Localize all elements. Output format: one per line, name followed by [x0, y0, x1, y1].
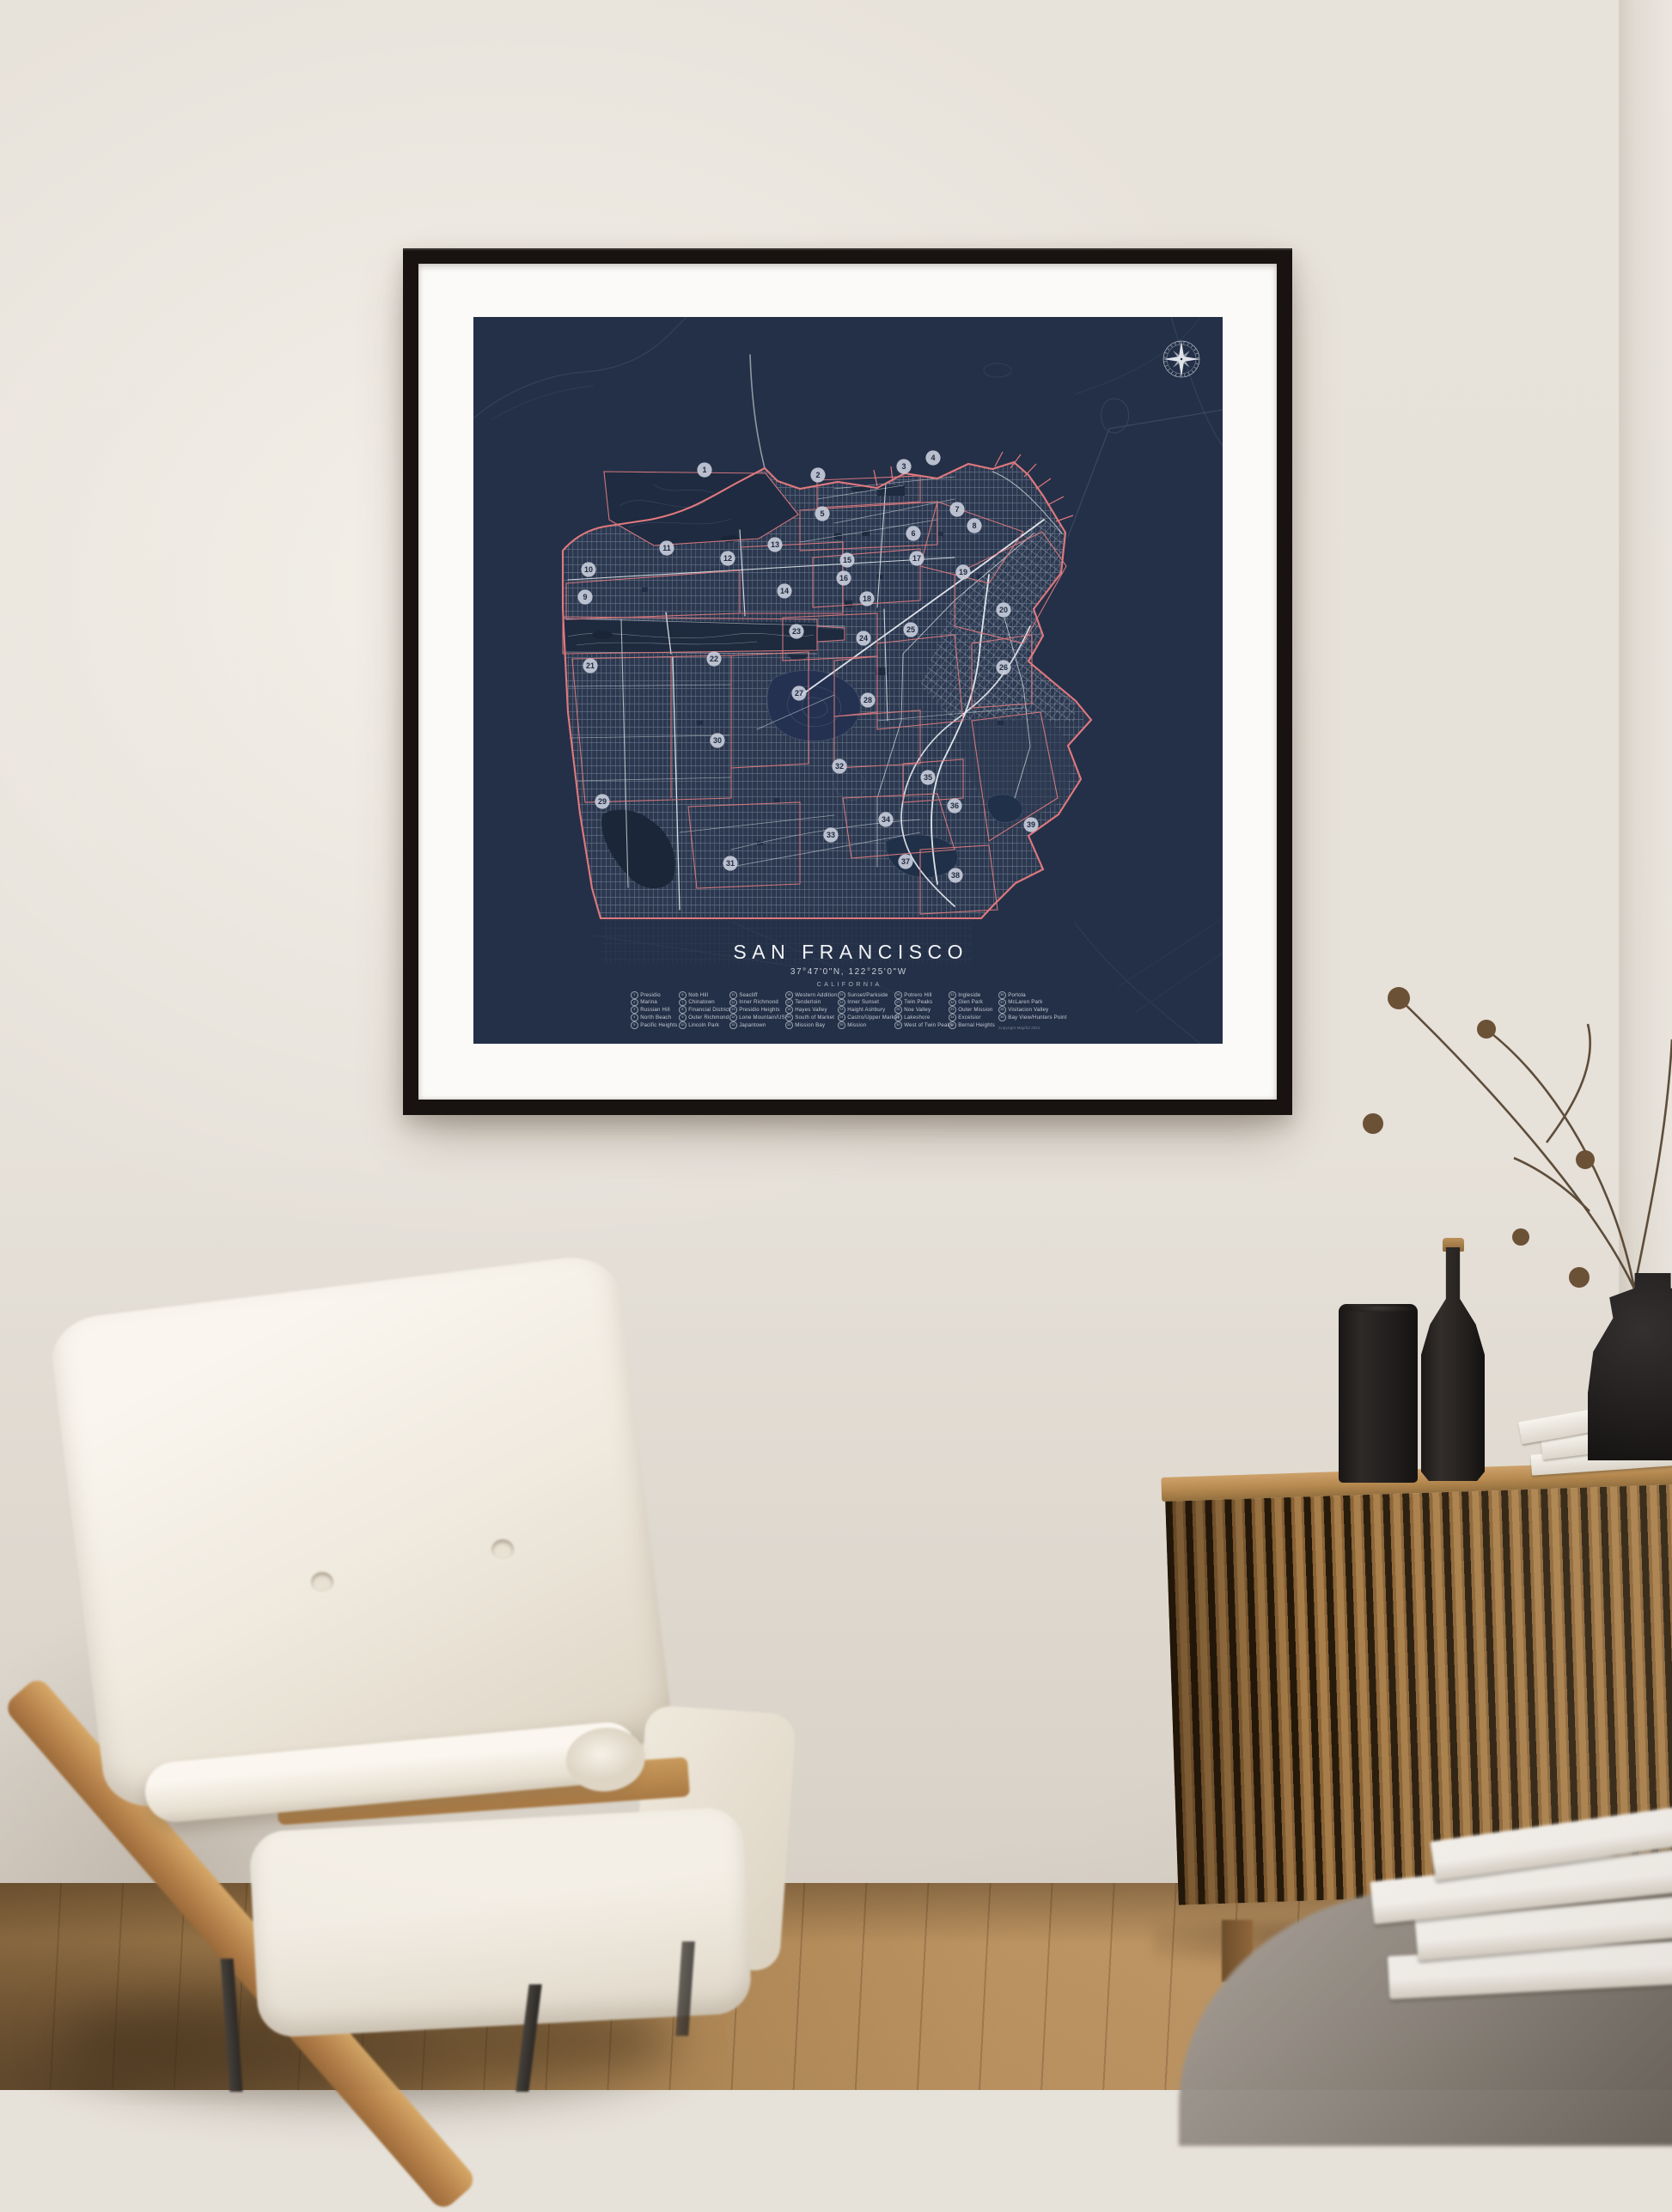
legend-item-label: Visitacion Valley — [1008, 1007, 1048, 1013]
legend-item-label: Ingleside — [958, 992, 980, 998]
legend-item: 2Marina — [631, 1000, 678, 1005]
legend-item-label: Twin Peaks — [904, 999, 932, 1005]
numbered-circle-icon: 12 — [729, 999, 737, 1007]
legend-column: 6Nob Hill7Chinatown8Financial District9O… — [679, 992, 730, 1028]
numbered-circle-icon: 34 — [949, 1014, 956, 1021]
numbered-circle-icon: 27 — [894, 999, 902, 1007]
numbered-circle-icon: 13 — [729, 1006, 737, 1014]
legend-item: 3Russian Hill — [631, 1008, 678, 1013]
numbered-circle-icon: 15 — [729, 1021, 737, 1029]
legend-item: 22Inner Sunset — [838, 1000, 900, 1005]
numbered-circle-icon: 18 — [785, 1006, 793, 1014]
numbered-circle-icon: 37 — [998, 999, 1006, 1007]
book-stack-floor — [1337, 1811, 1672, 2051]
numbered-circle-icon: 26 — [894, 991, 902, 999]
legend-item-label: Mission — [847, 1022, 866, 1028]
legend-item: 24Castro/Upper Market — [838, 1015, 900, 1020]
legend-item: 11Seacliff — [729, 992, 789, 997]
numbered-circle-icon: 3 — [631, 1006, 638, 1014]
legend-item-label: Seacliff — [739, 992, 757, 998]
numbered-circle-icon: 7 — [679, 999, 686, 1007]
legend-item: 28Noe Valley — [894, 1008, 953, 1013]
poster-frame: 1234567891011121314151617181920212223242… — [403, 248, 1292, 1115]
legend-column: 11Seacliff12Inner Richmond13Presidio Hei… — [729, 992, 789, 1028]
upholstery-button — [311, 1572, 333, 1593]
numbered-circle-icon: 21 — [838, 991, 845, 999]
legend-item: 39Bay View/Hunters Point — [998, 1015, 1067, 1020]
numbered-circle-icon: 35 — [949, 1021, 956, 1029]
legend-item: 23Haight Ashbury — [838, 1008, 900, 1013]
numbered-circle-icon: 30 — [894, 1021, 902, 1029]
numbered-circle-icon: 16 — [785, 991, 793, 999]
numbered-circle-icon: 22 — [838, 999, 845, 1007]
numbered-circle-icon: 38 — [998, 1006, 1006, 1014]
legend-column: 16Western Addition17Tenderloin18Hayes Va… — [785, 992, 837, 1028]
legend-item-label: Bay View/Hunters Point — [1008, 1015, 1066, 1021]
legend-item-label: Potrero Hill — [904, 992, 932, 998]
legend-item-label: Excelsior — [958, 1015, 981, 1021]
legend-item-label: West of Twin Peaks — [904, 1022, 953, 1028]
legend-item: 35Bernal Heights — [949, 1022, 995, 1027]
legend-item: 18Hayes Valley — [785, 1008, 837, 1013]
legend-item: 13Presidio Heights — [729, 1008, 789, 1013]
legend-item-label: Russian Hill — [640, 1007, 670, 1013]
numbered-circle-icon: 8 — [679, 1006, 686, 1014]
legend-item-label: Castro/Upper Market — [847, 1015, 899, 1021]
legend-column: 26Potrero Hill27Twin Peaks28Noe Valley29… — [894, 992, 953, 1028]
legend-item: 12Inner Richmond — [729, 1000, 789, 1005]
legend-item-label: Portola — [1008, 992, 1026, 998]
legend-item: 36Portola — [998, 992, 1067, 997]
legend-item: 8Financial District — [679, 1008, 730, 1013]
legend-item-label: Outer Mission — [958, 1007, 992, 1013]
legend-item-label: Lone Mountain/USF — [739, 1015, 789, 1021]
legend-item-label: Bernal Heights — [958, 1022, 995, 1028]
legend-item: 33Outer Mission — [949, 1008, 995, 1013]
legend-item: 17Tenderloin — [785, 1000, 837, 1005]
seed-pods — [1363, 987, 1595, 1288]
legend-column: 31Ingleside32Glen Park33Outer Mission34E… — [949, 992, 995, 1028]
legend-item: 37McLaren Park — [998, 1000, 1067, 1005]
legend-item-label: Tenderloin — [795, 999, 821, 1005]
legend-item: 4North Beach — [631, 1015, 678, 1020]
legend-item-label: Glen Park — [958, 999, 983, 1005]
numbered-circle-icon: 11 — [729, 991, 737, 999]
legend-item-label: Noe Valley — [904, 1007, 931, 1013]
legend-item: 30West of Twin Peaks — [894, 1022, 953, 1027]
legend-item-label: Hayes Valley — [795, 1007, 827, 1013]
legend-item: 10Lincoln Park — [679, 1022, 730, 1027]
legend-item-label: Sunset/Parkside — [847, 992, 888, 998]
numbered-circle-icon: 33 — [949, 1006, 956, 1014]
numbered-circle-icon: 29 — [894, 1014, 902, 1021]
legend-item-label: Chinatown — [688, 999, 715, 1005]
poster-print: 1234567891011121314151617181920212223242… — [473, 317, 1223, 1044]
legend-item: 27Twin Peaks — [894, 1000, 953, 1005]
numbered-circle-icon: 20 — [785, 1021, 793, 1029]
legend-item: 20Mission Bay — [785, 1022, 837, 1027]
upholstery-button — [491, 1539, 514, 1560]
legend-item-label: Lakeshore — [904, 1015, 930, 1021]
legend-item-label: Presidio — [640, 992, 661, 998]
numbered-circle-icon: 4 — [631, 1014, 638, 1021]
legend-item: 14Lone Mountain/USF — [729, 1015, 789, 1020]
armchair — [0, 1228, 859, 2090]
legend-item: 34Excelsior — [949, 1015, 995, 1020]
legend-column: 1Presidio2Marina3Russian Hill4North Beac… — [631, 992, 678, 1028]
legend-item-label: Western Addition — [795, 992, 837, 998]
legend-item: 25Mission — [838, 1022, 900, 1027]
legend-item: 19South of Market — [785, 1015, 837, 1020]
legend-item-label: Japantown — [739, 1022, 766, 1028]
numbered-circle-icon: 31 — [949, 991, 956, 999]
numbered-circle-icon: 2 — [631, 999, 638, 1007]
cylinder-vase — [1339, 1304, 1418, 1483]
poster-legend: 1Presidio2Marina3Russian Hill4North Beac… — [473, 317, 1223, 1044]
legend-item: 15Japantown — [729, 1022, 789, 1027]
legend-item: 21Sunset/Parkside — [838, 992, 900, 997]
legend-item-label: Marina — [640, 999, 657, 1005]
legend-item-label: Inner Richmond — [739, 999, 778, 1005]
numbered-circle-icon: 17 — [785, 999, 793, 1007]
legend-column: 36Portola37McLaren Park38Visitacion Vall… — [998, 992, 1067, 1021]
legend-item: 5Pacific Heights — [631, 1022, 678, 1027]
numbered-circle-icon: 6 — [679, 991, 686, 999]
legend-item-label: North Beach — [640, 1015, 671, 1021]
legend-item-label: Outer Richmond — [688, 1015, 729, 1021]
numbered-circle-icon: 28 — [894, 1006, 902, 1014]
legend-item-label: Presidio Heights — [739, 1007, 780, 1013]
legend-item: 26Potrero Hill — [894, 992, 953, 997]
legend-item-label: Lincoln Park — [688, 1022, 719, 1028]
legend-item: 1Presidio — [631, 992, 678, 997]
legend-item: 29Lakeshore — [894, 1015, 953, 1020]
numbered-circle-icon: 5 — [631, 1021, 638, 1029]
legend-item: 9Outer Richmond — [679, 1015, 730, 1020]
numbered-circle-icon: 24 — [838, 1014, 845, 1021]
numbered-circle-icon: 23 — [838, 1006, 845, 1014]
numbered-circle-icon: 1 — [631, 991, 638, 999]
numbered-circle-icon: 10 — [679, 1021, 686, 1029]
legend-item-label: Mission Bay — [795, 1022, 825, 1028]
numbered-circle-icon: 14 — [729, 1014, 737, 1021]
numbered-circle-icon: 25 — [838, 1021, 845, 1029]
legend-item: 6Nob Hill — [679, 992, 730, 997]
legend-item: 16Western Addition — [785, 992, 837, 997]
numbered-circle-icon: 19 — [785, 1014, 793, 1021]
legend-item: 32Glen Park — [949, 1000, 995, 1005]
copyright-line: Copyright Mapiful 2021 — [998, 1026, 1040, 1030]
legend-item-label: Financial District — [688, 1007, 729, 1013]
legend-item-label: South of Market — [795, 1015, 834, 1021]
legend-item: 38Visitacion Valley — [998, 1008, 1067, 1013]
legend-item-label: McLaren Park — [1008, 999, 1042, 1005]
legend-item-label: Inner Sunset — [847, 999, 879, 1005]
numbered-circle-icon: 9 — [679, 1014, 686, 1021]
legend-item-label: Haight Ashbury — [847, 1007, 885, 1013]
numbered-circle-icon: 36 — [998, 991, 1006, 999]
numbered-circle-icon: 32 — [949, 999, 956, 1007]
legend-item-label: Pacific Heights — [640, 1022, 677, 1028]
legend-item: 7Chinatown — [679, 1000, 730, 1005]
legend-item-label: Nob Hill — [688, 992, 708, 998]
room-photo: { "poster": { "title": "SAN FRANCISCO", … — [0, 0, 1672, 2090]
legend-item: 31Ingleside — [949, 992, 995, 997]
numbered-circle-icon: 39 — [998, 1014, 1006, 1021]
legend-column: 21Sunset/Parkside22Inner Sunset23Haight … — [838, 992, 900, 1028]
